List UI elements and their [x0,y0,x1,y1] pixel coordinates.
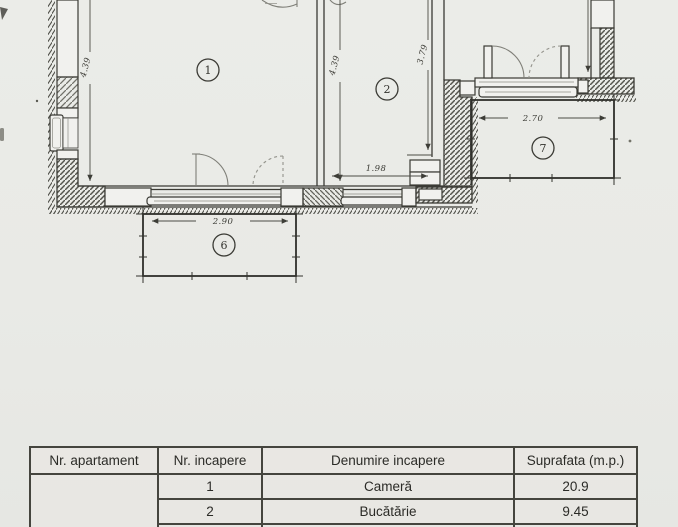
door-swing-arc [529,46,561,78]
balcony-7: 2.70 7 [464,94,621,185]
dimension-label: 2.90 [212,217,234,227]
left-wall-window [50,115,78,151]
door-leaf [561,46,569,78]
area-cell: 20.9 [514,474,637,499]
balcony-outline [471,100,614,178]
left-wall-pier [57,77,78,108]
balcony-6: 2.90 6 [136,207,303,283]
right-exterior-wall [444,80,472,187]
area-table-section: Nr. apartament Nr. incapere Denumire inc… [29,446,638,527]
room-number-cell: 2 [158,499,262,524]
scanned-floorplan-page: 4.39 1 4.39 3.79 1.98 2 [0,0,678,527]
room-number-cell: 1 [158,474,262,499]
balcony7-french-doors [475,46,578,97]
dimension-label: 4.39 [327,54,342,78]
room1-balcony-window [147,190,287,206]
floorplan-drawing: 4.39 1 4.39 3.79 1.98 2 [0,0,678,446]
dimension-label: 3.79 [416,43,431,66]
right-wall-insulation-strip [472,97,478,203]
col-header-room-name: Denumire incapere [262,447,514,474]
door-swing-arc [492,46,524,78]
left-corner-wall [57,159,105,207]
top-door-fragments [262,0,346,7]
area-cell: 9.45 [514,499,637,524]
table-row: 1 Cameră 20.9 [30,474,637,499]
col-header-room-number: Nr. incapere [158,447,262,474]
room-name-cell: Bucătărie [262,499,514,524]
room-name-cell: Cameră [262,474,514,499]
door-leaf [484,46,492,78]
room2-window [341,190,405,206]
dimension-label: 4.39 [78,56,93,80]
apartment-number-cell [30,474,158,527]
room-number: 1 [205,64,212,77]
room-number: 7 [540,142,547,155]
left-wall-insulation-strip [48,0,55,214]
table-header-row: Nr. apartament Nr. incapere Denumire inc… [30,447,637,474]
dimension-label: 2.70 [522,114,544,124]
room-number: 2 [384,83,391,96]
col-header-apartment-number: Nr. apartament [30,447,158,474]
apartment-walls [48,0,636,214]
room-area-table: Nr. apartament Nr. incapere Denumire inc… [29,446,638,527]
upper-right-wall [576,0,636,102]
dimension-label: 1.98 [366,164,387,174]
room-2: 4.39 3.79 1.98 2 [327,0,432,181]
room-number: 6 [221,239,228,252]
col-header-area: Suprafata (m.p.) [514,447,637,474]
bottom-wall-pier [303,188,343,206]
room1-balcony-door [192,154,283,186]
